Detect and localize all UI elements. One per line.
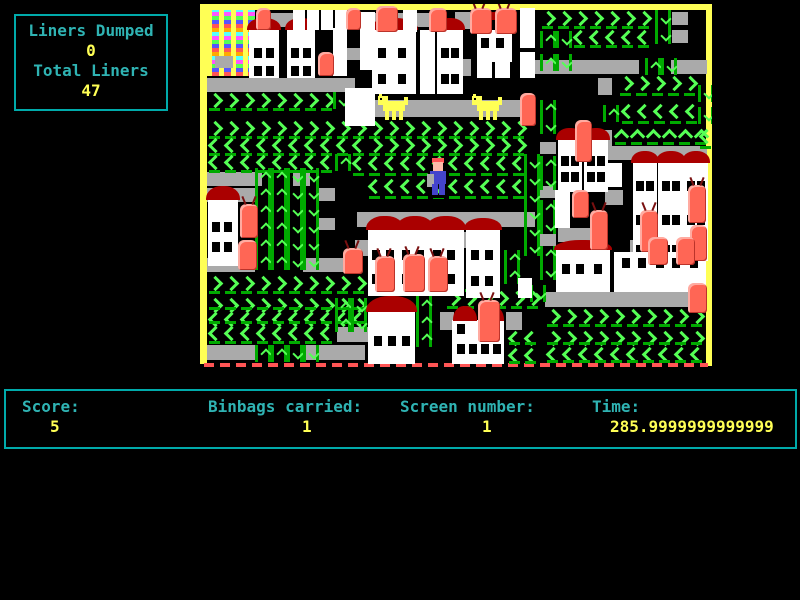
building-pillar [555,190,570,228]
arrow-icon [634,75,650,97]
arrow-icon [399,137,415,157]
platform-tile [215,56,233,68]
arrow-icon [673,330,689,346]
player-sprite [428,158,448,198]
arrow-icon [577,346,593,364]
platform-tile [506,312,522,330]
ladder-arrow-up [255,236,271,253]
house [368,312,415,364]
time-value: 285.9999999999999 [610,417,774,436]
arrow-icon [572,29,588,49]
house-window [402,336,410,346]
arrow-icon [645,128,661,146]
house [556,250,610,292]
binbag [572,190,589,218]
house-window [303,66,311,76]
flies-icon [346,240,358,248]
platform-tile [347,48,361,60]
house-window [646,181,654,191]
arrow-icon [255,297,271,311]
ladder-arrow-up [271,219,287,236]
status-bar: Score: 5 Binbags carried: 1 Screen numbe… [4,389,797,449]
house [466,230,500,298]
house-window [561,172,569,182]
ladder-arrow-down [524,154,540,171]
arrow-icon [495,155,511,177]
house-window [441,48,449,58]
arrow-icon [447,137,463,157]
arrow-icon [609,308,625,328]
house-window [291,48,299,58]
arrow-icon [271,92,287,112]
house-window [481,38,489,48]
arrow-icon [523,347,539,365]
binbag [256,8,271,30]
arrow-icon [636,29,652,49]
arrow-icon [545,346,561,364]
binbag [575,120,592,162]
ladder-arrow-up [416,313,432,330]
score-label: Score: [22,397,80,416]
ladder-arrow-down [287,345,303,362]
total-liners-value: 47 [16,81,166,101]
flies-icon [431,248,443,256]
flies-icon [378,248,390,256]
ladder-arrow-up [255,345,271,362]
binbag-with-flies [240,204,258,238]
ladder-arrow-down [303,253,319,270]
house-window [662,215,670,225]
arrow-band-right [540,10,652,30]
house-window [451,74,459,84]
house-window [571,172,579,182]
dog-eye [474,98,476,100]
arrow-icon [367,178,383,200]
arrow-icon [661,128,677,146]
ladder-arrow-up [540,200,556,217]
arrow-icon [657,330,673,346]
arrow-icon [618,75,634,97]
house-window [447,250,455,260]
arrow-icon [561,308,577,328]
arrow-icon [495,178,511,200]
arrow-icon [319,297,335,311]
arrow-icon [689,330,705,346]
playfield[interactable] [200,4,712,376]
ladder-arrow-up [271,236,287,253]
arrow-band-right [545,308,705,328]
arrow-icon [319,311,335,325]
platform-tile [672,12,688,25]
binbag [676,237,695,265]
ladder-arrow-down [698,107,712,124]
binbags-value: 1 [302,417,312,436]
ladder-arrow-down [351,315,367,332]
arrow-icon [207,297,223,311]
house-window [212,222,220,232]
arrow-icon [545,330,561,346]
flies-icon [593,202,605,210]
arrow-icon [447,178,463,200]
conveyor-belt [545,292,707,307]
arrow-icon [447,155,463,177]
ladder-arrow-up [335,154,351,171]
binbag [376,6,398,32]
house-window [471,250,479,260]
house-window [398,74,406,84]
ladder-arrow-up [335,315,351,332]
arrow-icon [255,325,271,345]
arrow-icon [303,311,319,325]
arrow-icon [641,308,657,328]
arrow-icon [223,275,239,295]
house-window [224,242,232,252]
dog-part [479,111,483,120]
arrow-icon [207,92,223,112]
dog-sprite [378,94,410,120]
time-label: Time: [592,397,640,416]
arrow-icon [625,308,641,328]
arrow-icon [609,330,625,346]
ladder-arrow-up [540,100,556,117]
arrow-icon [367,137,383,157]
house-roof [464,218,502,230]
arrow-icon [479,155,495,177]
building-pillar [293,10,305,30]
house-window [597,156,605,166]
dog-eye [380,98,382,100]
arrow-icon [657,346,673,364]
ladder-arrow-up [271,253,287,270]
arrow-band-right [618,75,698,97]
arrow-icon [673,308,689,328]
ladder-arrow-down [351,298,367,315]
ladder-arrow-up [255,185,271,202]
arrow-icon [303,325,319,345]
house-window [636,181,644,191]
dog-part [385,111,389,120]
house-window [378,48,386,58]
ladder-arrow-up [540,156,556,173]
ladder-arrow-down [287,185,303,202]
arrow-icon [207,311,223,325]
arrow-icon [223,297,239,311]
platform-tile [540,234,556,246]
building-pillar [345,88,375,126]
house [287,30,315,78]
house-window [597,172,605,182]
dog-part [392,111,396,120]
total-liners-label: Total Liners [16,61,166,81]
arrow-icon [577,330,593,346]
arrow-icon [588,29,604,49]
ladder-arrow-up [645,58,661,75]
arrow-band-left [572,29,652,49]
arrow-icon [255,311,271,325]
binbag [648,237,668,265]
arrow-icon [561,330,577,346]
arrow-icon [479,178,495,200]
platform-tile [598,78,612,95]
arrow-icon [287,92,303,112]
arrow-icon [255,275,271,295]
ladder-arrow-down [524,205,540,222]
ladder-arrow-down [303,202,319,219]
house-window [291,66,299,76]
arrow-icon [698,128,712,150]
arrow-icon [650,75,666,97]
binbag-with-flies [343,248,363,274]
building-pillar [307,10,319,30]
building-pillar [477,56,492,78]
building-pillar [518,278,532,298]
ladder-arrow-up [271,185,287,202]
flies-icon [481,292,493,300]
arrow-icon [303,92,319,112]
house-window [451,48,459,58]
arrow-icon [495,137,511,157]
house-window [212,242,220,252]
wall-left [200,4,207,364]
arrow-icon [604,10,620,30]
ladder-arrow-down [287,253,303,270]
arrow-icon [207,325,223,345]
arrow-icon [335,275,351,295]
arrow-icon [673,346,689,364]
flies-icon [498,4,510,8]
arrow-icon [239,275,255,295]
flies-icon [691,177,703,185]
binbag-with-flies [470,8,492,34]
arrow-band-left [698,128,712,150]
ladder-arrow-down [303,185,319,202]
arrow-icon [383,155,399,177]
platform-tile [318,188,335,201]
ladder-arrow-up [416,296,432,313]
ladder-arrow-down [303,345,319,362]
arrow-band-right [207,275,367,295]
house-window [266,48,274,58]
ladder-arrow-down [655,27,671,44]
arrow-icon [641,330,657,346]
building-pillar [333,28,347,76]
platform-tile [540,142,556,154]
house-window [485,276,493,286]
arrow-band-left [507,347,539,365]
binbag-with-flies [688,185,706,223]
arrow-icon [625,330,641,346]
arrow-icon [463,155,479,177]
flies-icon [243,196,255,204]
arrow-band-right [367,137,527,157]
platform-tile [319,218,335,230]
binbag [520,93,536,126]
conveyor-belt [207,345,255,360]
binbag [429,8,447,32]
arrow-icon [577,308,593,328]
arrow-band-left [507,330,539,346]
arrow-icon [625,346,641,364]
arrow-icon [383,178,399,200]
ladder-arrow-up [416,330,432,347]
ladder-arrow-down [287,168,303,185]
arrow-band-left [620,103,700,125]
arrow-band-right [545,330,705,346]
ladder-arrow-up [504,250,520,267]
ladder-arrow-up [255,253,271,270]
arrow-icon [271,325,287,345]
arrow-icon [682,75,698,97]
binbag [318,52,334,76]
ladder-arrow-down [556,31,572,48]
ladder-arrow-up [603,105,619,122]
house-window [457,324,465,334]
arrow-band-left [207,325,335,345]
house-window [441,74,449,84]
house-roof [366,296,417,312]
arrow-icon [399,155,415,177]
building-pillar [403,10,417,32]
flies-icon [643,202,655,210]
building-pillar [520,52,535,78]
house-window [562,264,570,274]
ladder-arrow-down [661,58,677,75]
building-pillar [321,10,333,30]
arrow-icon [463,178,479,200]
arrow-icon [636,10,652,30]
player-part [431,195,439,198]
ladder-arrow-up [271,202,287,219]
house-window [457,344,465,354]
ladder-arrow-up [255,168,271,185]
player-part [433,162,443,171]
arrow-icon [545,308,561,328]
building-pillar [495,56,510,78]
house-window [561,156,569,166]
house-window [447,274,455,284]
arrow-icon [572,10,588,30]
arrow-icon [620,10,636,30]
dog-part [498,97,502,105]
arrow-icon [287,297,303,311]
arrow-band-right [207,92,335,112]
house [249,30,279,78]
dog-part [493,111,497,120]
ladder-arrow-up [271,345,287,362]
screen-number-label: Screen number: [400,397,535,416]
flies-icon [473,4,485,8]
binbag-with-flies [478,300,500,342]
arrow-icon [319,275,335,295]
house-window [471,276,479,286]
arrow-band-left [545,346,705,364]
ladder-arrow-down [540,173,556,190]
house-window [493,344,501,354]
building-pillar [360,12,375,70]
house-window [303,48,311,58]
arrow-icon [588,10,604,30]
house-window [374,336,382,346]
ladder-arrow-down [698,85,712,102]
ladder-arrow-down [524,239,540,256]
house-window [672,215,680,225]
house-window [481,344,489,354]
arrow-icon [620,103,636,125]
arrow-icon [223,92,239,112]
arrow-icon [239,154,255,174]
arrow-icon [287,325,303,345]
arrow-band-up [613,128,709,146]
arrow-icon [668,103,684,125]
arrow-icon [367,155,383,177]
arrow-icon [507,347,523,365]
arrow-icon [239,311,255,325]
ladder-arrow-down [530,285,546,302]
house-window [576,264,584,274]
arrow-icon [399,178,415,200]
arrow-icon [351,137,367,157]
arrow-icon [303,275,319,295]
arrow-icon [636,103,652,125]
house-window [469,344,477,354]
house-window [388,336,396,346]
arrow-icon [319,154,335,174]
house-window [254,48,262,58]
house-window [254,66,262,76]
score-value: 5 [50,417,60,436]
arrow-icon [287,275,303,295]
arrow-icon [593,346,609,364]
arrow-icon [383,137,399,157]
building-pillar [605,163,622,187]
arrow-icon [604,29,620,49]
ladder-arrow-down [524,171,540,188]
conveyor-belt [207,172,262,186]
house-window [485,250,493,260]
liners-dumped-value: 0 [16,41,166,61]
ladder-arrow-down [540,217,556,234]
arrow-icon [507,330,523,346]
dog-part [404,97,408,105]
ladder-arrow-down [303,236,319,253]
arrow-icon [415,137,431,157]
arrow-icon [271,275,287,295]
house-window [398,48,406,58]
arrow-icon [652,103,668,125]
binbag [238,240,257,270]
arrow-icon [239,297,255,311]
house-window [622,258,630,268]
binbag-with-flies [403,254,425,292]
dog-part [486,111,490,120]
liners-dumped-label: Liners Dumped [16,21,166,41]
arrow-icon [629,128,645,146]
arrow-icon [207,275,223,295]
arrow-icon [479,137,495,157]
arrow-icon [255,92,271,112]
arrow-icon [287,311,303,325]
ladder-arrow-up [540,31,556,48]
ladder-arrow-down [287,219,303,236]
arrow-icon [319,325,335,345]
arrow-icon [540,10,556,30]
house-window [587,172,595,182]
arrow-icon [271,297,287,311]
house-window [672,181,680,191]
ladder-arrow-down [303,219,319,236]
platform-tile [605,190,623,205]
ladder-arrow-up [271,168,287,185]
